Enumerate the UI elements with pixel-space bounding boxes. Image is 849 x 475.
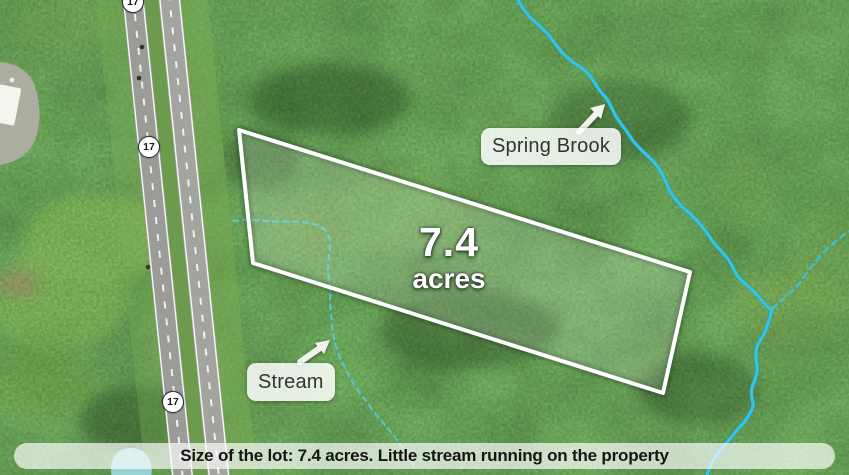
vehicle [146,265,151,270]
stream-callout: Stream [247,363,335,401]
spring-brook-callout-label: Spring Brook [492,135,610,158]
spring-brook-callout: Spring Brook [481,128,621,165]
stream-callout-label: Stream [258,371,324,394]
caption-bar: Size of the lot: 7.4 acres. Little strea… [14,443,835,469]
parcel-area-label: 7.4 acres [383,222,515,293]
route-17-shield: 17 [162,391,184,413]
map-canvas[interactable]: 17 17 17 7.4 acres Spring Brook Stream S… [0,0,849,475]
vehicle [140,45,145,50]
route-17-shield: 17 [138,136,160,158]
parcel-area-value: 7.4 [383,222,515,263]
vehicle [10,78,15,83]
parcel-area-unit: acres [383,265,515,293]
caption-text: Size of the lot: 7.4 acres. Little strea… [180,446,669,466]
vehicle [137,76,142,81]
